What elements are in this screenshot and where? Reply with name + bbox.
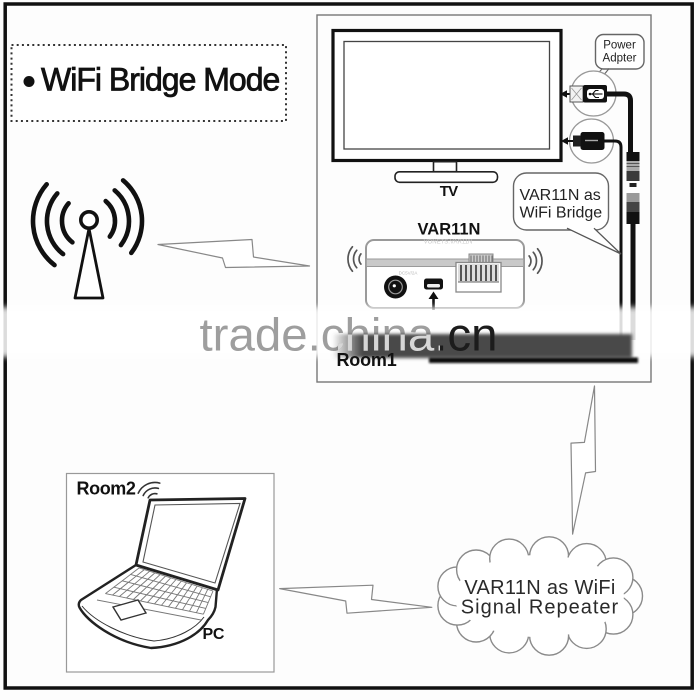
svg-text:TV: TV (440, 183, 458, 200)
svg-text:PC: PC (203, 626, 225, 643)
svg-text:Adpter: Adpter (603, 53, 637, 65)
svg-text:Signal Repeater: Signal Repeater (461, 597, 619, 619)
svg-text:Power: Power (603, 40, 636, 52)
svg-text:VAR11N: VAR11N (418, 221, 481, 239)
svg-text:VONETS.VAR11N: VONETS.VAR11N (424, 240, 473, 246)
svg-text:Room2: Room2 (77, 479, 136, 499)
svg-text:DC5V/2A: DC5V/2A (399, 271, 418, 276)
svg-text:Room1: Room1 (337, 350, 397, 370)
svg-text:VAR11N as: VAR11N as (520, 187, 601, 204)
svg-text:WiFi Bridge: WiFi Bridge (520, 205, 603, 222)
svg-text:WiFi Bridge Mode: WiFi Bridge Mode (41, 62, 280, 98)
